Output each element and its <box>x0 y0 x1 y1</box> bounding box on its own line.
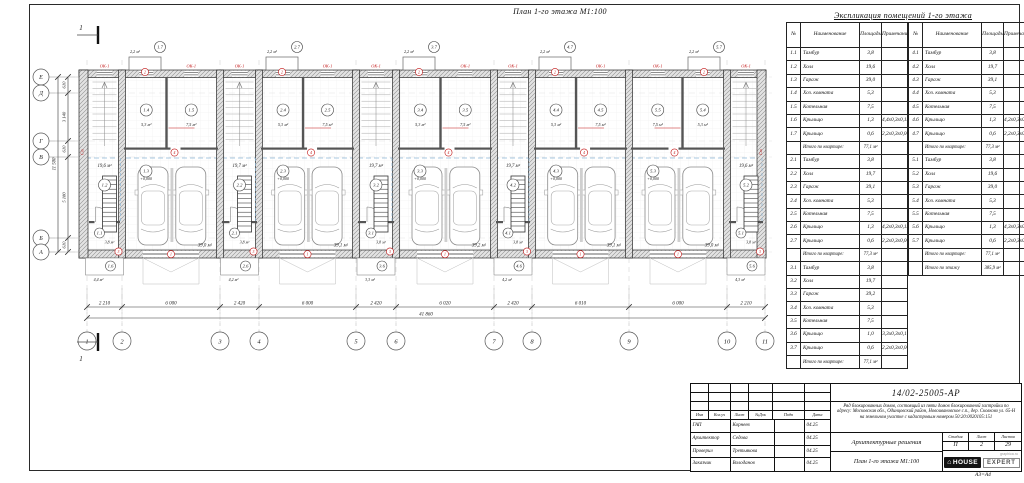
exp-col-header: № <box>787 23 801 48</box>
porch-area: 2,2 м² <box>267 49 278 55</box>
exp-row: 5.5Котельная7,5 <box>909 208 1024 221</box>
porch-area: 2,2 м² <box>130 49 141 55</box>
door-tag: 2 <box>418 70 420 74</box>
exp-cell: 2.7 <box>787 235 801 248</box>
exp-cell: 5.3 <box>909 181 923 194</box>
exp-cell: 3,8 <box>860 155 882 168</box>
exp-cell <box>882 74 908 87</box>
exp-total-row: Итого по квартире:77,3 м² <box>787 248 908 261</box>
room-tag: 1.7 <box>157 45 163 50</box>
drawing-sheet: СтСтОК-1ОК-1ОК-11.72,2 м²21.64,4 м²31419… <box>0 0 1024 483</box>
room-tag: 1.2 <box>102 183 108 188</box>
exp-cell <box>882 61 908 74</box>
car-icon <box>173 167 209 245</box>
exp-cell: 1.7 <box>787 128 801 141</box>
door-tag: 1 <box>677 253 679 257</box>
exp-cell <box>1004 195 1024 208</box>
exp-row: 5.3Гараж39,0 <box>909 181 1024 194</box>
window-mark: ОК-1 <box>186 64 196 69</box>
exp-cell: Тамбур <box>801 262 860 275</box>
room-tag: 5.1 <box>738 231 744 236</box>
exp-row: 2.5Котельная7,5 <box>787 208 908 221</box>
exp-row: 1.7Крыльцо0,62,2х0,3х0,06 <box>787 128 908 141</box>
sign-role: Проверил <box>691 446 731 459</box>
exp-row: 3.2Холл19,7 <box>787 275 908 288</box>
exp-cell <box>787 248 801 261</box>
dim-label: 2 210 <box>740 302 752 307</box>
dim-label: 610 <box>62 81 67 89</box>
exp-cell <box>882 168 908 181</box>
exp-cell: 1.3 <box>787 74 801 87</box>
exp-cell: 1,3 <box>860 114 882 127</box>
sign-date: 04.25 <box>805 420 830 433</box>
wall-mark: Ст <box>80 149 85 155</box>
exp-row: 2.6Крыльцо1,34,2х0,3х0,13 <box>787 222 908 235</box>
exp-row: 5.1Тамбур3,8 <box>909 155 1024 168</box>
exp-cell: 0,6 <box>860 342 882 355</box>
room-tag: 1.3 <box>143 169 149 174</box>
logo-house-box: ⌂HOUSE <box>944 457 981 468</box>
exp-cell <box>1004 74 1024 87</box>
exp-row: 2.1Тамбур3,8 <box>787 155 908 168</box>
exp-cell: 4,4х0,3х0,13 <box>882 114 908 127</box>
room-tag: 1.5 <box>188 108 194 113</box>
exp-cell: 5.6 <box>909 222 923 235</box>
room-area: 19,6 м² <box>739 163 754 169</box>
exp-col-header: № <box>909 23 923 48</box>
sign-name: Корнеев <box>731 420 775 433</box>
explication-table-right: №НаименованиеПлощадьПримечание4.1Тамбур3… <box>908 22 1024 276</box>
car-icon <box>309 167 345 245</box>
exp-cell: Крыльцо <box>801 222 860 235</box>
title-block-bottom: Архитектурные решения План 1-го этажа М1… <box>831 433 1021 471</box>
exp-row: 4.4Хоз. комната5,3 <box>909 88 1024 101</box>
porch-area: 4,2 м² <box>229 277 240 283</box>
exp-cell <box>882 302 908 315</box>
exp-cell: 1.2 <box>787 61 801 74</box>
exp-col-header: Наименование <box>923 23 982 48</box>
exp-cell: Гараж <box>801 74 860 87</box>
dim-label: 3 140 <box>62 111 67 122</box>
dim-label: 610 <box>62 145 67 153</box>
room-area: 39,1 м² <box>607 243 622 249</box>
title-block-left: ИзмКол.учЛист№ДокПодпДата ГАПКорнеев04.2… <box>691 384 831 471</box>
exp-cell: 3.5 <box>787 315 801 328</box>
room-area: 19,7 м² <box>232 163 247 169</box>
room-tag: 1.1 <box>97 231 103 236</box>
exp-row: 4.2Холл19,7 <box>909 61 1024 74</box>
exp-cell <box>882 289 908 302</box>
door-tag: 1 <box>170 253 172 257</box>
exp-cell: 5,3 <box>860 195 882 208</box>
exp-col-header: Примечание <box>882 23 908 48</box>
exp-row: 3.3Гараж39,2 <box>787 289 908 302</box>
stage-value: П <box>943 441 969 451</box>
window-mark: ОК-1 <box>323 64 333 69</box>
axis-letter: Е <box>38 75 43 81</box>
room-tag: 2.5 <box>325 108 331 113</box>
exp-cell: Холл <box>801 61 860 74</box>
exp-total-row: Итого по этажу385,9 м² <box>909 262 1024 275</box>
dim-label: 2 420 <box>507 302 519 307</box>
room-tag: 2.1 <box>232 231 238 236</box>
exp-cell: Крыльцо <box>801 128 860 141</box>
sheet-title: План 1-го этажа М1:100 <box>831 452 942 471</box>
exp-cell <box>1004 262 1024 275</box>
room-tag: 4.2 <box>510 183 516 188</box>
exp-cell: 3,8 <box>982 48 1004 61</box>
door-tag: 4 <box>583 151 585 155</box>
exp-cell: 4,2х0,3х0,13 <box>882 222 908 235</box>
exp-cell <box>1004 48 1024 61</box>
exp-total-row: Итого по квартире:77,3 м² <box>909 141 1024 154</box>
exp-cell: 3.2 <box>787 275 801 288</box>
section-mark-label: 1 <box>79 24 83 32</box>
doc-number: 14/02-25005-АР <box>831 384 1021 402</box>
exp-cell: Котельная <box>801 315 860 328</box>
axis-letter: Б <box>38 236 43 242</box>
exp-cell <box>882 262 908 275</box>
exp-cell <box>882 315 908 328</box>
exp-row: 5.4Хоз. комната5,3 <box>909 195 1024 208</box>
exp-cell <box>787 141 801 154</box>
change-header-cell: Кол.уч <box>709 411 731 420</box>
exp-row: 3.4Хоз. комната5,3 <box>787 302 908 315</box>
exp-cell: 2,2х0,3х0,06 <box>1004 235 1024 248</box>
change-header-cell: №Док <box>749 411 773 420</box>
exp-total-row: Итого по квартире:77,1 м² <box>909 248 1024 261</box>
exp-row: 2.7Крыльцо0,62,2х0,3х0,06 <box>787 235 908 248</box>
exp-row: 1.3Гараж39,0 <box>787 74 908 87</box>
exp-row: 4.6Крыльцо1,34,2х0,3х0,13 <box>909 114 1024 127</box>
exp-row: 3.1Тамбур3,8 <box>787 262 908 275</box>
exp-cell: 39,2 <box>860 289 882 302</box>
exp-cell <box>1004 101 1024 114</box>
exp-col-header: Площадь <box>860 23 882 48</box>
room-tag: 4.4 <box>553 108 559 113</box>
exp-row: 3.7Крыльцо0,62,2х0,3х0,06 <box>787 342 908 355</box>
exp-row: 3.6Крыльцо1,03,3х0,3х0,1 <box>787 329 908 342</box>
exp-cell: 19,7 <box>982 61 1004 74</box>
stage-value: 2 <box>969 441 995 451</box>
sign-signature <box>775 433 805 446</box>
exp-cell: Холл <box>923 168 982 181</box>
exp-cell <box>1004 208 1024 221</box>
exp-cell <box>1004 168 1024 181</box>
exp-cell: Итого по квартире: <box>923 141 982 154</box>
exp-cell: Итого по квартире: <box>801 248 860 261</box>
exp-cell: 3.1 <box>787 262 801 275</box>
room-tag: 5.4 <box>700 108 706 113</box>
door-tag: 4 <box>310 151 312 155</box>
exp-cell: Итого по квартире: <box>801 355 860 368</box>
exp-cell: 77,1 м² <box>860 355 882 368</box>
sign-role: Заказчик <box>691 458 731 471</box>
dim-label: 2 420 <box>234 302 246 307</box>
stage-and-logo: СтадияЛистЛистов П229 graphica.ru ⌂HOUSE… <box>943 433 1021 471</box>
room-tag: 3.6 <box>379 264 385 269</box>
room-area: 39,0 м² <box>198 243 213 249</box>
exp-cell <box>882 208 908 221</box>
window-mark: ОК-1 <box>460 64 470 69</box>
exp-cell: 4,2х0,3х0,13 <box>1004 114 1024 127</box>
exp-cell: 7,5 <box>860 315 882 328</box>
exp-cell <box>909 248 923 261</box>
exp-cell: Холл <box>923 61 982 74</box>
logo-site-text: graphica.ru <box>1000 452 1018 456</box>
exp-cell: 7,5 <box>860 101 882 114</box>
exp-cell: Крыльцо <box>923 222 982 235</box>
exp-cell: 19,6 <box>982 168 1004 181</box>
exp-cell: 2,2х0,3х0,06 <box>882 342 908 355</box>
exp-cell: 39,0 <box>860 74 882 87</box>
porch-area: 2,2 м² <box>689 49 700 55</box>
exp-row: 1.1Тамбур3,8 <box>787 48 908 61</box>
exp-cell: 39,1 <box>860 181 882 194</box>
porch-area: 2,2 м² <box>404 49 415 55</box>
exp-cell: 3,8 <box>982 155 1004 168</box>
exp-cell: 39,1 <box>982 74 1004 87</box>
exp-cell: Холл <box>801 275 860 288</box>
exp-cell: 19,7 <box>860 275 882 288</box>
exp-cell: 0,6 <box>982 235 1004 248</box>
exp-cell: 2,2х0,3х0,06 <box>882 235 908 248</box>
exp-cell: 5,3 <box>860 302 882 315</box>
door-tag: 1 <box>444 253 446 257</box>
exp-cell: 3.4 <box>787 302 801 315</box>
plan-title: План 1-го этажа М1:100 <box>440 7 680 16</box>
exp-cell: 4.5 <box>909 101 923 114</box>
stage-values: П229 <box>943 441 1021 451</box>
window-mark: ОК-1 <box>508 64 518 69</box>
room-area: 19,7 м² <box>506 163 521 169</box>
exp-cell: Хоз. комната <box>801 302 860 315</box>
door-tag: 4 <box>174 151 176 155</box>
sign-role: Архитектор <box>691 433 731 446</box>
door-tag: 3 <box>253 250 255 254</box>
exp-cell: Итого по квартире: <box>923 248 982 261</box>
exp-row: 5.7Крыльцо0,62,2х0,3х0,06 <box>909 235 1024 248</box>
exp-row: 1.5Котельная7,5 <box>787 101 908 114</box>
section-mark-label: 1 <box>79 355 83 363</box>
format-note: А3=А4 <box>975 472 991 478</box>
house-icon: ⌂ <box>947 460 952 466</box>
exp-cell <box>882 88 908 101</box>
door-tag: 4 <box>448 151 450 155</box>
exp-cell: 5,3 <box>982 195 1004 208</box>
exp-cell: 1.1 <box>787 48 801 61</box>
exp-row: 2.3Гараж39,1 <box>787 181 908 194</box>
room-tag: 3.1 <box>368 231 374 236</box>
room-tag: 5.6 <box>749 264 755 269</box>
axis-number: 11 <box>762 338 768 345</box>
dim-label: 610 <box>62 241 67 249</box>
exp-cell <box>882 101 908 114</box>
room-tag: 3.3 <box>417 169 423 174</box>
exp-cell: Итого по квартире: <box>801 141 860 154</box>
exp-cell <box>882 195 908 208</box>
exp-cell: Хоз. комната <box>801 195 860 208</box>
change-header-row: ИзмКол.учЛист№ДокПодпДата <box>691 411 830 420</box>
axis-letter: Г <box>38 139 43 145</box>
door-tag: 2 <box>281 70 283 74</box>
exp-col-header: Примечание <box>1004 23 1024 48</box>
exp-cell: 3,8 <box>860 48 882 61</box>
exp-cell: 4.7 <box>909 128 923 141</box>
exp-cell: 77,3 м² <box>982 141 1004 154</box>
exp-cell: Холл <box>801 168 860 181</box>
exp-cell: Крыльцо <box>801 235 860 248</box>
exp-cell: 5.4 <box>909 195 923 208</box>
porch-area: 4,2 м² <box>502 277 513 283</box>
exp-cell: 2,2х0,3х0,06 <box>882 128 908 141</box>
exp-cell: Крыльцо <box>801 342 860 355</box>
exp-cell <box>1004 181 1024 194</box>
window-mark: ОК-1 <box>653 64 663 69</box>
change-header-cell: Изм <box>691 411 709 420</box>
dim-label: 6 010 <box>575 302 587 307</box>
exp-cell <box>1004 61 1024 74</box>
sign-name: Володанов <box>731 458 775 471</box>
door-tag: 3 <box>389 250 391 254</box>
exp-cell: 77,1 м² <box>982 248 1004 261</box>
porch-area: 4,4 м² <box>94 277 105 283</box>
exp-cell: 4.4 <box>909 88 923 101</box>
room-tag: 2.4 <box>280 108 286 113</box>
room-tag: 2.2 <box>237 183 243 188</box>
door-tag: 1 <box>580 253 582 257</box>
exp-cell: 77,1 м² <box>860 141 882 154</box>
exp-cell: Котельная <box>801 208 860 221</box>
change-row <box>691 384 830 393</box>
exp-total-row: Итого по квартире:77,1 м² <box>787 141 908 154</box>
window-mark: ОК-1 <box>596 64 606 69</box>
exp-cell: 1.6 <box>787 114 801 127</box>
exp-row: 1.6Крыльцо1,34,4х0,3х0,13 <box>787 114 908 127</box>
logo-word-house: HOUSE <box>953 459 978 466</box>
explication-tables: №НаименованиеПлощадьПримечание1.1Тамбур3… <box>786 22 1020 369</box>
room-tag: 3.4 <box>417 108 423 113</box>
car-icon <box>680 167 716 245</box>
dim-label: 6 020 <box>439 302 451 307</box>
exp-cell: 19,7 <box>860 168 882 181</box>
exp-cell <box>882 141 908 154</box>
exp-cell: Итого по этажу <box>923 262 982 275</box>
door-tag: 2 <box>554 70 556 74</box>
exp-cell: 2.2 <box>787 168 801 181</box>
exp-cell: 4.2 <box>909 61 923 74</box>
sign-signature <box>775 420 805 433</box>
exp-cell <box>882 181 908 194</box>
logo-word-expert: EXPERT <box>983 458 1020 468</box>
exp-col-header: Наименование <box>801 23 860 48</box>
change-row <box>691 393 830 402</box>
exp-cell <box>909 262 923 275</box>
axis-letter: А <box>38 250 43 256</box>
room-tag: 5.5 <box>655 108 661 113</box>
exp-cell: Хоз. комната <box>923 195 982 208</box>
dim-total: 41 860 <box>419 313 433 318</box>
exp-cell: 2.5 <box>787 208 801 221</box>
door-tag: 3 <box>526 250 528 254</box>
room-tag: 3.5 <box>462 108 468 113</box>
explication-table-left: №НаименованиеПлощадьПримечание1.1Тамбур3… <box>786 22 908 369</box>
exp-cell: 7,5 <box>982 208 1004 221</box>
dim-label: 6 000 <box>165 302 177 307</box>
room-area: 19,7 м² <box>369 163 384 169</box>
exp-row: 3.5Котельная7,5 <box>787 315 908 328</box>
exp-cell: Тамбур <box>801 155 860 168</box>
exp-cell: 1,3 <box>982 114 1004 127</box>
exp-cell: Гараж <box>923 181 982 194</box>
project-description: Ряд блокированных домов, состоящий из пя… <box>831 402 1021 433</box>
axis-letter: В <box>39 155 43 161</box>
sign-signature <box>775 458 805 471</box>
window-mark: ОК-1 <box>371 64 381 69</box>
porch-area: 3,3 м² <box>365 277 376 283</box>
exp-cell <box>1004 88 1024 101</box>
exp-cell: Крыльцо <box>923 128 982 141</box>
dimensions-left: 6103 1406105 18061011 500 <box>53 74 80 255</box>
sign-role: ГАП <box>691 420 731 433</box>
axis-number: 10 <box>724 338 731 345</box>
exp-cell: 5.5 <box>909 208 923 221</box>
exp-cell: 5,3 <box>860 88 882 101</box>
exp-cell: 4,3х0,3х0,13 <box>1004 222 1024 235</box>
section-title: Архитектурные решения <box>831 433 942 452</box>
exp-row: 4.3Гараж39,1 <box>909 74 1024 87</box>
exp-cell <box>1004 141 1024 154</box>
exp-row: 1.2Холл19,6 <box>787 61 908 74</box>
exp-cell: Крыльцо <box>801 114 860 127</box>
exp-cell: Крыльцо <box>801 329 860 342</box>
exp-cell: Гараж <box>923 74 982 87</box>
exp-cell: 3,3х0,3х0,1 <box>882 329 908 342</box>
exp-cell: 7,5 <box>860 208 882 221</box>
sign-date: 04.25 <box>805 433 830 446</box>
exp-cell: 3.7 <box>787 342 801 355</box>
exp-col-header: Площадь <box>982 23 1004 48</box>
exp-cell: Хоз. комната <box>801 88 860 101</box>
exp-cell: 7,5 <box>982 101 1004 114</box>
axis-bubbles-left: ЕДГВБА <box>33 69 49 260</box>
exp-cell: Гараж <box>801 181 860 194</box>
exp-cell <box>882 355 908 368</box>
stage-value: 29 <box>995 441 1021 451</box>
exp-row: 4.7Крыльцо0,62,2х0,3х0,06 <box>909 128 1024 141</box>
dim-label: 2 420 <box>370 302 382 307</box>
axis-bubbles-bottom: 1234567891011 <box>78 332 774 350</box>
exp-row: 5.6Крыльцо1,34,3х0,3х0,13 <box>909 222 1024 235</box>
exp-cell: Хоз. комната <box>923 88 982 101</box>
exp-cell: 1.4 <box>787 88 801 101</box>
exp-cell: 5.7 <box>909 235 923 248</box>
room-tag: 3.2 <box>373 183 379 188</box>
title-block-right: 14/02-25005-АР Ряд блокированных домов, … <box>831 384 1021 471</box>
porch-area: 2,2 м² <box>540 49 551 55</box>
sign-row: ПроверилТретьякова04.25 <box>691 446 830 459</box>
room-tag: 5.7 <box>716 45 722 50</box>
title-block-titles: Архитектурные решения План 1-го этажа М1… <box>831 433 943 471</box>
dim-label: 2 210 <box>99 302 111 307</box>
company-logo: graphica.ru ⌂HOUSE EXPERT <box>943 451 1021 471</box>
door-tag: 2 <box>703 70 705 74</box>
exp-cell: 3.3 <box>787 289 801 302</box>
change-header-cell: Подп <box>773 411 805 420</box>
room-area: 39,1 м² <box>334 243 349 249</box>
window-mark: ОК-1 <box>100 64 110 69</box>
door-tag: 4 <box>674 151 676 155</box>
